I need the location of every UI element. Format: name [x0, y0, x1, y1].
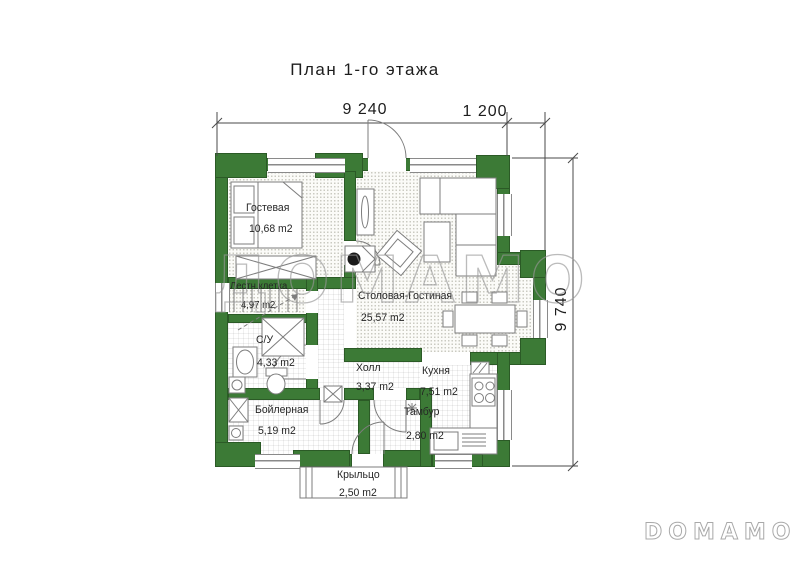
bathroom-sink [233, 347, 257, 377]
room-label-vestibule: Тамбур [404, 406, 439, 418]
tv-cabinet [357, 189, 374, 235]
room-label-living: Столовая-Гостиная [358, 290, 452, 302]
coffee-table [424, 222, 450, 262]
room-label-hall: Холл [356, 362, 381, 374]
room-label-boiler: Бойлерная [255, 404, 308, 416]
armchair [376, 230, 421, 275]
fireplace [345, 246, 375, 272]
room-label-guest: Гостевая [246, 202, 289, 214]
room-label-stair: Лестн.клетка [230, 281, 287, 292]
room-label-bathroom: С/У [256, 334, 273, 346]
bed [231, 182, 302, 248]
hatched-piers [324, 362, 489, 402]
room-area-stair: 4,97 m2 [241, 300, 275, 311]
room-area-kitchen: 7,51 m2 [420, 386, 458, 398]
room-area-boiler: 5,19 m2 [258, 425, 296, 437]
toilet [266, 368, 287, 394]
washing-machine [229, 377, 245, 393]
room-area-hall: 3,37 m2 [356, 381, 394, 393]
room-area-porch: 2,50 m2 [339, 487, 377, 499]
room-area-bathroom: 4,33 m2 [257, 357, 295, 369]
plan-linework [0, 0, 800, 567]
room-area-guest: 10,68 m2 [249, 223, 293, 235]
floor-plan-drawing: План 1-го этажа [0, 0, 800, 567]
room-label-kitchen: Кухня [422, 365, 450, 377]
room-label-porch: Крыльцо [337, 469, 380, 481]
boiler-equipment [229, 398, 248, 440]
wardrobe [236, 256, 316, 279]
room-area-vestibule: 2,80 m2 [406, 430, 444, 442]
room-area-living: 25,57 m2 [361, 312, 405, 324]
dining-table [443, 292, 527, 346]
